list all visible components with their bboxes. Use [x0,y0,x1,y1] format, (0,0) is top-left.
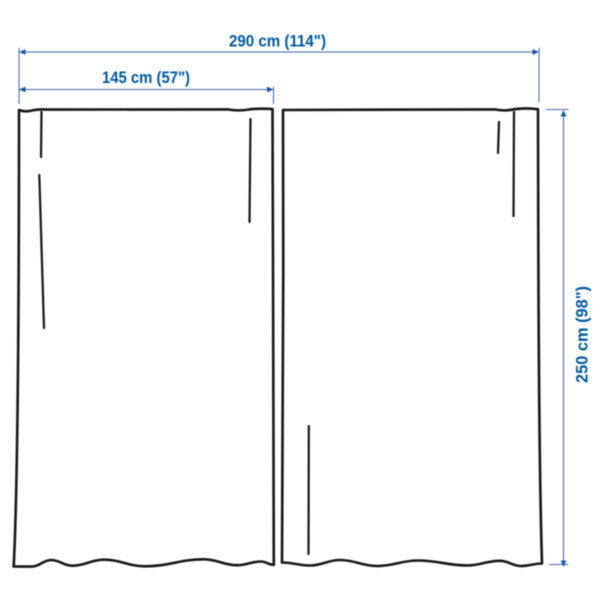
svg-text:145 cm (57"): 145 cm (57") [102,68,190,87]
svg-text:250 cm (98"): 250 cm (98") [573,286,592,383]
svg-text:290 cm (114"): 290 cm (114") [229,32,326,51]
